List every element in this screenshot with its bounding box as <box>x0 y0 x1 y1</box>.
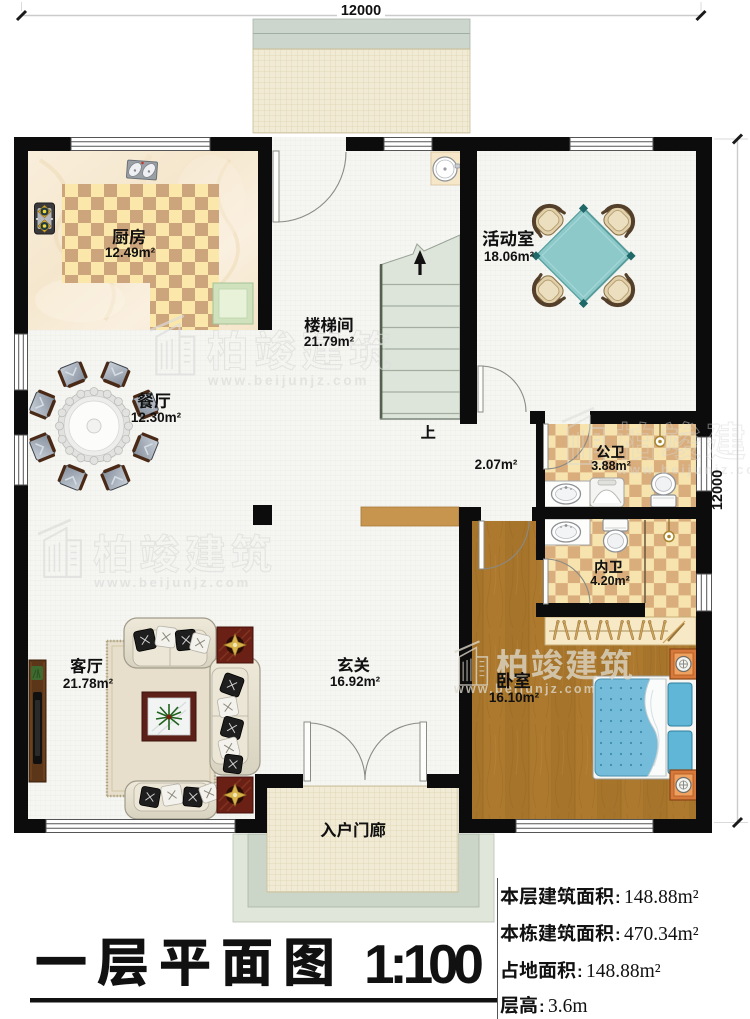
svg-text:148.88m²: 148.88m² <box>586 961 661 982</box>
svg-text:148.88m²: 148.88m² <box>624 887 699 908</box>
svg-text::: : <box>615 888 621 907</box>
svg-text:www.beijunjz.com: www.beijunjz.com <box>93 575 251 590</box>
svg-text:21.79m²: 21.79m² <box>304 334 355 349</box>
svg-text:12.49m²: 12.49m² <box>105 245 156 260</box>
svg-text:2.07m²: 2.07m² <box>475 457 518 472</box>
svg-text:4.20m²: 4.20m² <box>590 574 630 588</box>
svg-text::: : <box>539 997 545 1016</box>
svg-text:3.88m²: 3.88m² <box>591 459 631 473</box>
svg-text:12.30m²: 12.30m² <box>131 410 182 425</box>
svg-text:16.92m²: 16.92m² <box>330 674 381 689</box>
svg-text:470.34m²: 470.34m² <box>624 924 699 945</box>
svg-text:www.beijunjz.com: www.beijunjz.com <box>616 462 750 477</box>
svg-text:www.beijunjz.com: www.beijunjz.com <box>207 373 369 388</box>
svg-text:21.78m²: 21.78m² <box>63 676 114 691</box>
svg-text:12000: 12000 <box>341 3 381 19</box>
svg-text::: : <box>615 925 621 944</box>
svg-text:16.10m²: 16.10m² <box>489 690 540 705</box>
svg-text::: : <box>577 962 583 981</box>
svg-text:1:100: 1:100 <box>364 933 484 995</box>
svg-text:12000: 12000 <box>710 470 726 510</box>
svg-text:3.6m: 3.6m <box>548 996 588 1017</box>
svg-text:18.06m²: 18.06m² <box>484 249 535 264</box>
